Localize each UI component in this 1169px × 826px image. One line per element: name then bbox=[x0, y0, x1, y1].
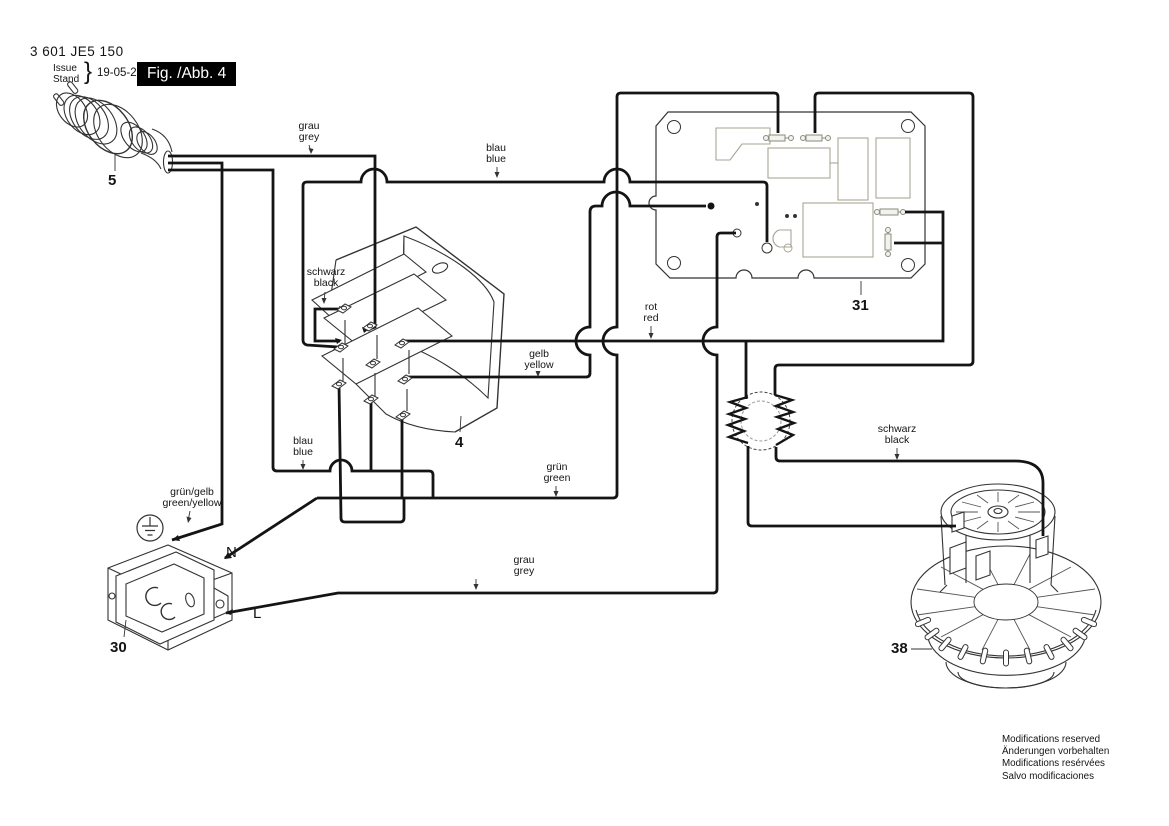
label-line: blue bbox=[486, 154, 506, 165]
label-line: schwarz bbox=[878, 424, 917, 435]
label-line: grau bbox=[298, 121, 319, 132]
footer-line: Salvo modificaciones bbox=[1002, 771, 1109, 783]
wiring-diagram: 3 601 JE5 150 Issue Stand } 19-05-29 Fig… bbox=[0, 0, 1169, 826]
figure-badge: Fig. /Abb. 4 bbox=[137, 62, 236, 86]
footer-line: Modifications resérvées bbox=[1002, 758, 1109, 770]
pcb-illustration bbox=[649, 112, 925, 278]
terminal-label-l: L bbox=[253, 606, 261, 621]
wire-label-gelb: gelb yellow bbox=[524, 349, 553, 370]
wire-label-gruen-gelb: grün/gelb green/yellow bbox=[163, 487, 222, 508]
footer-note: Modifications reserved Änderungen vorbeh… bbox=[1002, 734, 1109, 783]
connector-symbol bbox=[728, 392, 794, 450]
label-line: blau bbox=[486, 143, 506, 154]
wire-label-blau-top: blau blue bbox=[486, 143, 506, 164]
label-line: green/yellow bbox=[163, 498, 222, 509]
label-line: grey bbox=[298, 132, 319, 143]
footer-line: Modifications reserved bbox=[1002, 734, 1109, 746]
callout-motor: 38 bbox=[891, 641, 908, 656]
callout-socket: 30 bbox=[110, 640, 127, 655]
wire-label-blau-bottom: blau blue bbox=[293, 436, 313, 457]
pcb-solder-dot bbox=[708, 203, 715, 210]
wire-motor-bottom bbox=[748, 446, 956, 526]
label-line: rot bbox=[643, 302, 658, 313]
label-line: green bbox=[544, 473, 571, 484]
motor-illustration bbox=[911, 484, 1101, 688]
wire-label-schwarz-switch: schwarz black bbox=[307, 267, 346, 288]
issue-stand-label: Issue Stand bbox=[53, 63, 79, 85]
switch-illustration bbox=[312, 227, 504, 432]
wire-label-schwarz-motor: schwarz black bbox=[878, 424, 917, 445]
label-line: grün/gelb bbox=[163, 487, 222, 498]
label-line: blau bbox=[293, 436, 313, 447]
issue-label: Issue bbox=[53, 63, 79, 74]
label-line: yellow bbox=[524, 360, 553, 371]
callout-switch: 4 bbox=[455, 435, 463, 450]
label-line: schwarz bbox=[307, 267, 346, 278]
stand-label: Stand bbox=[53, 74, 79, 85]
callout-circuit-board: 31 bbox=[852, 298, 869, 313]
label-line: blue bbox=[293, 447, 313, 458]
issue-stand-brace: } bbox=[84, 58, 92, 86]
label-line: black bbox=[307, 278, 346, 289]
footer-line: Änderungen vorbehalten bbox=[1002, 746, 1109, 758]
label-line: grau bbox=[513, 555, 534, 566]
wire-label-grau-bottom: grau grey bbox=[513, 555, 534, 576]
wire-label-gruen: grün green bbox=[544, 462, 571, 483]
label-line: black bbox=[878, 435, 917, 446]
label-line: grün bbox=[544, 462, 571, 473]
part-number: 3 601 JE5 150 bbox=[30, 44, 124, 59]
wire-label-rot: rot red bbox=[643, 302, 658, 323]
label-line: grey bbox=[513, 566, 534, 577]
diagram-artwork bbox=[0, 0, 1169, 826]
connector-zigzag-left bbox=[728, 397, 748, 443]
wire-gruen-gelb bbox=[168, 163, 222, 540]
label-line: red bbox=[643, 313, 658, 324]
wire-label-grau-top: grau grey bbox=[298, 121, 319, 142]
terminal-label-n: N bbox=[226, 545, 237, 560]
callout-plug: 5 bbox=[108, 173, 116, 188]
label-line: gelb bbox=[524, 349, 553, 360]
plug-illustration bbox=[50, 81, 172, 173]
earth-symbol bbox=[137, 515, 163, 541]
wire-neutral-diagonal bbox=[225, 498, 317, 558]
socket-illustration bbox=[108, 545, 232, 650]
